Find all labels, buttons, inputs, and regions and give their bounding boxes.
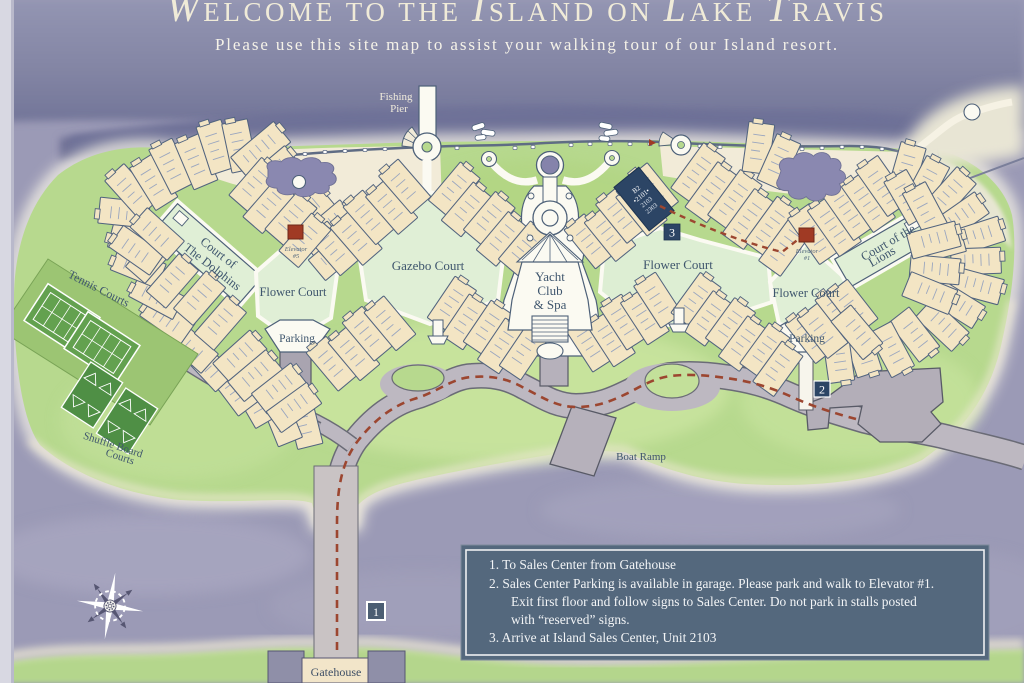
svg-text:2. Sales Center Parking is ava: 2. Sales Center Parking is available in … <box>489 576 934 591</box>
svg-text:Fishing: Fishing <box>379 91 413 103</box>
svg-text:Flower Court: Flower Court <box>772 286 840 300</box>
svg-text:Elevator: Elevator <box>284 246 308 253</box>
svg-text:WELCOME TO THE ISLAND ON LAKE: WELCOME TO THE ISLAND ON LAKE TRAVIS <box>166 0 887 30</box>
svg-text:Flower Court: Flower Court <box>643 257 713 272</box>
svg-text:Gazebo Court: Gazebo Court <box>392 258 465 273</box>
svg-text:1. To Sales Center from Gateho: 1. To Sales Center from Gatehouse <box>489 557 676 572</box>
svg-text:Club: Club <box>537 283 562 298</box>
svg-text:3. Arrive at Island Sales Cent: 3. Arrive at Island Sales Center, Unit 2… <box>489 630 717 645</box>
svg-text:with “reserved” signs.: with “reserved” signs. <box>511 612 630 627</box>
svg-text:Gatehouse: Gatehouse <box>311 665 362 679</box>
svg-text:Parking: Parking <box>279 333 315 345</box>
svg-text:#1: #1 <box>804 255 811 262</box>
svg-text:Flower Court: Flower Court <box>259 285 327 299</box>
svg-text:Please use this site map to as: Please use this site map to assist your … <box>215 35 839 54</box>
svg-text:Pier: Pier <box>390 103 408 115</box>
svg-text:2: 2 <box>819 383 825 397</box>
svg-text:Elevator: Elevator <box>795 248 819 255</box>
svg-text:Yacht: Yacht <box>535 269 565 284</box>
svg-text:Parking: Parking <box>789 333 825 345</box>
svg-text:Boat Ramp: Boat Ramp <box>616 451 666 463</box>
svg-text:1: 1 <box>373 605 379 619</box>
svg-text:& Spa: & Spa <box>534 297 567 312</box>
svg-text:#5: #5 <box>293 253 300 260</box>
svg-text:Exit first floor and follow si: Exit first floor and follow signs to Sal… <box>511 594 917 609</box>
svg-text:3: 3 <box>669 226 675 240</box>
